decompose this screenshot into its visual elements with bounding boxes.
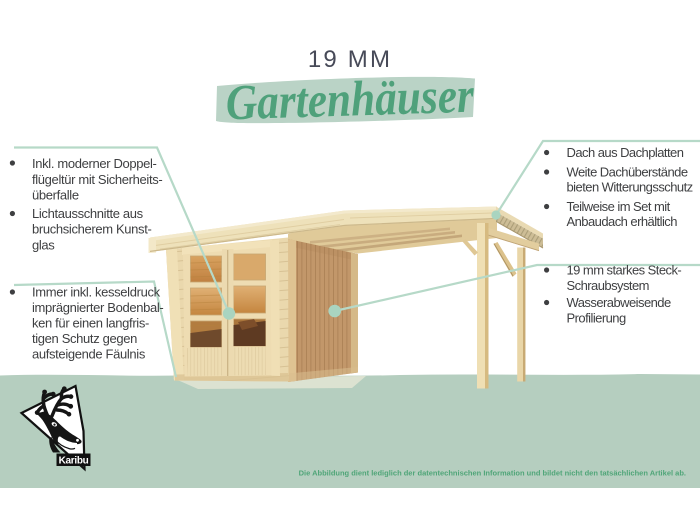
svg-text:Die Abbildung dient lediglich: Die Abbildung dient lediglich der datent… [299,469,686,478]
svg-text:Teilweise im Set mit: Teilweise im Set mit [567,199,671,214]
svg-text:Inkl. moderner Doppel-: Inkl. moderner Doppel- [32,156,157,171]
svg-text:bieten Witterungsschutz: bieten Witterungsschutz [567,180,693,195]
svg-text:Lichtausschnitte aus: Lichtausschnitte aus [32,206,144,221]
svg-text:Anbaudach erhältlich: Anbaudach erhältlich [567,214,678,229]
svg-text:imprägnierter Bodenbal-: imprägnierter Bodenbal- [32,300,163,315]
svg-text:überfalle: überfalle [32,188,79,203]
svg-text:Schraubsystem: Schraubsystem [567,278,649,293]
svg-text:Immer inkl. kesseldruck: Immer inkl. kesseldruck [32,285,161,300]
svg-text:Profilierung: Profilierung [567,311,626,326]
svg-text:Gartenhäuser: Gartenhäuser [225,67,475,131]
svg-text:aufsteigende Fäulnis: aufsteigende Fäulnis [32,347,146,362]
svg-text:19 mm starkes Steck-: 19 mm starkes Steck- [567,263,682,278]
svg-text:tigen Schutz gegen: tigen Schutz gegen [32,331,137,346]
svg-text:Wasserabweisende: Wasserabweisende [567,295,671,310]
svg-text:ken für einen langfris-: ken für einen langfris- [32,316,149,331]
svg-text:bruchsicherem Kunst-: bruchsicherem Kunst- [32,222,151,237]
svg-text:flügeltür mit Sicherheits-: flügeltür mit Sicherheits- [32,172,162,187]
svg-text:Dach aus Dachplatten: Dach aus Dachplatten [567,145,684,160]
svg-text:Weite Dachüberstände: Weite Dachüberstände [567,165,688,180]
svg-text:glas: glas [32,238,55,253]
svg-text:Karibu: Karibu [59,455,89,466]
